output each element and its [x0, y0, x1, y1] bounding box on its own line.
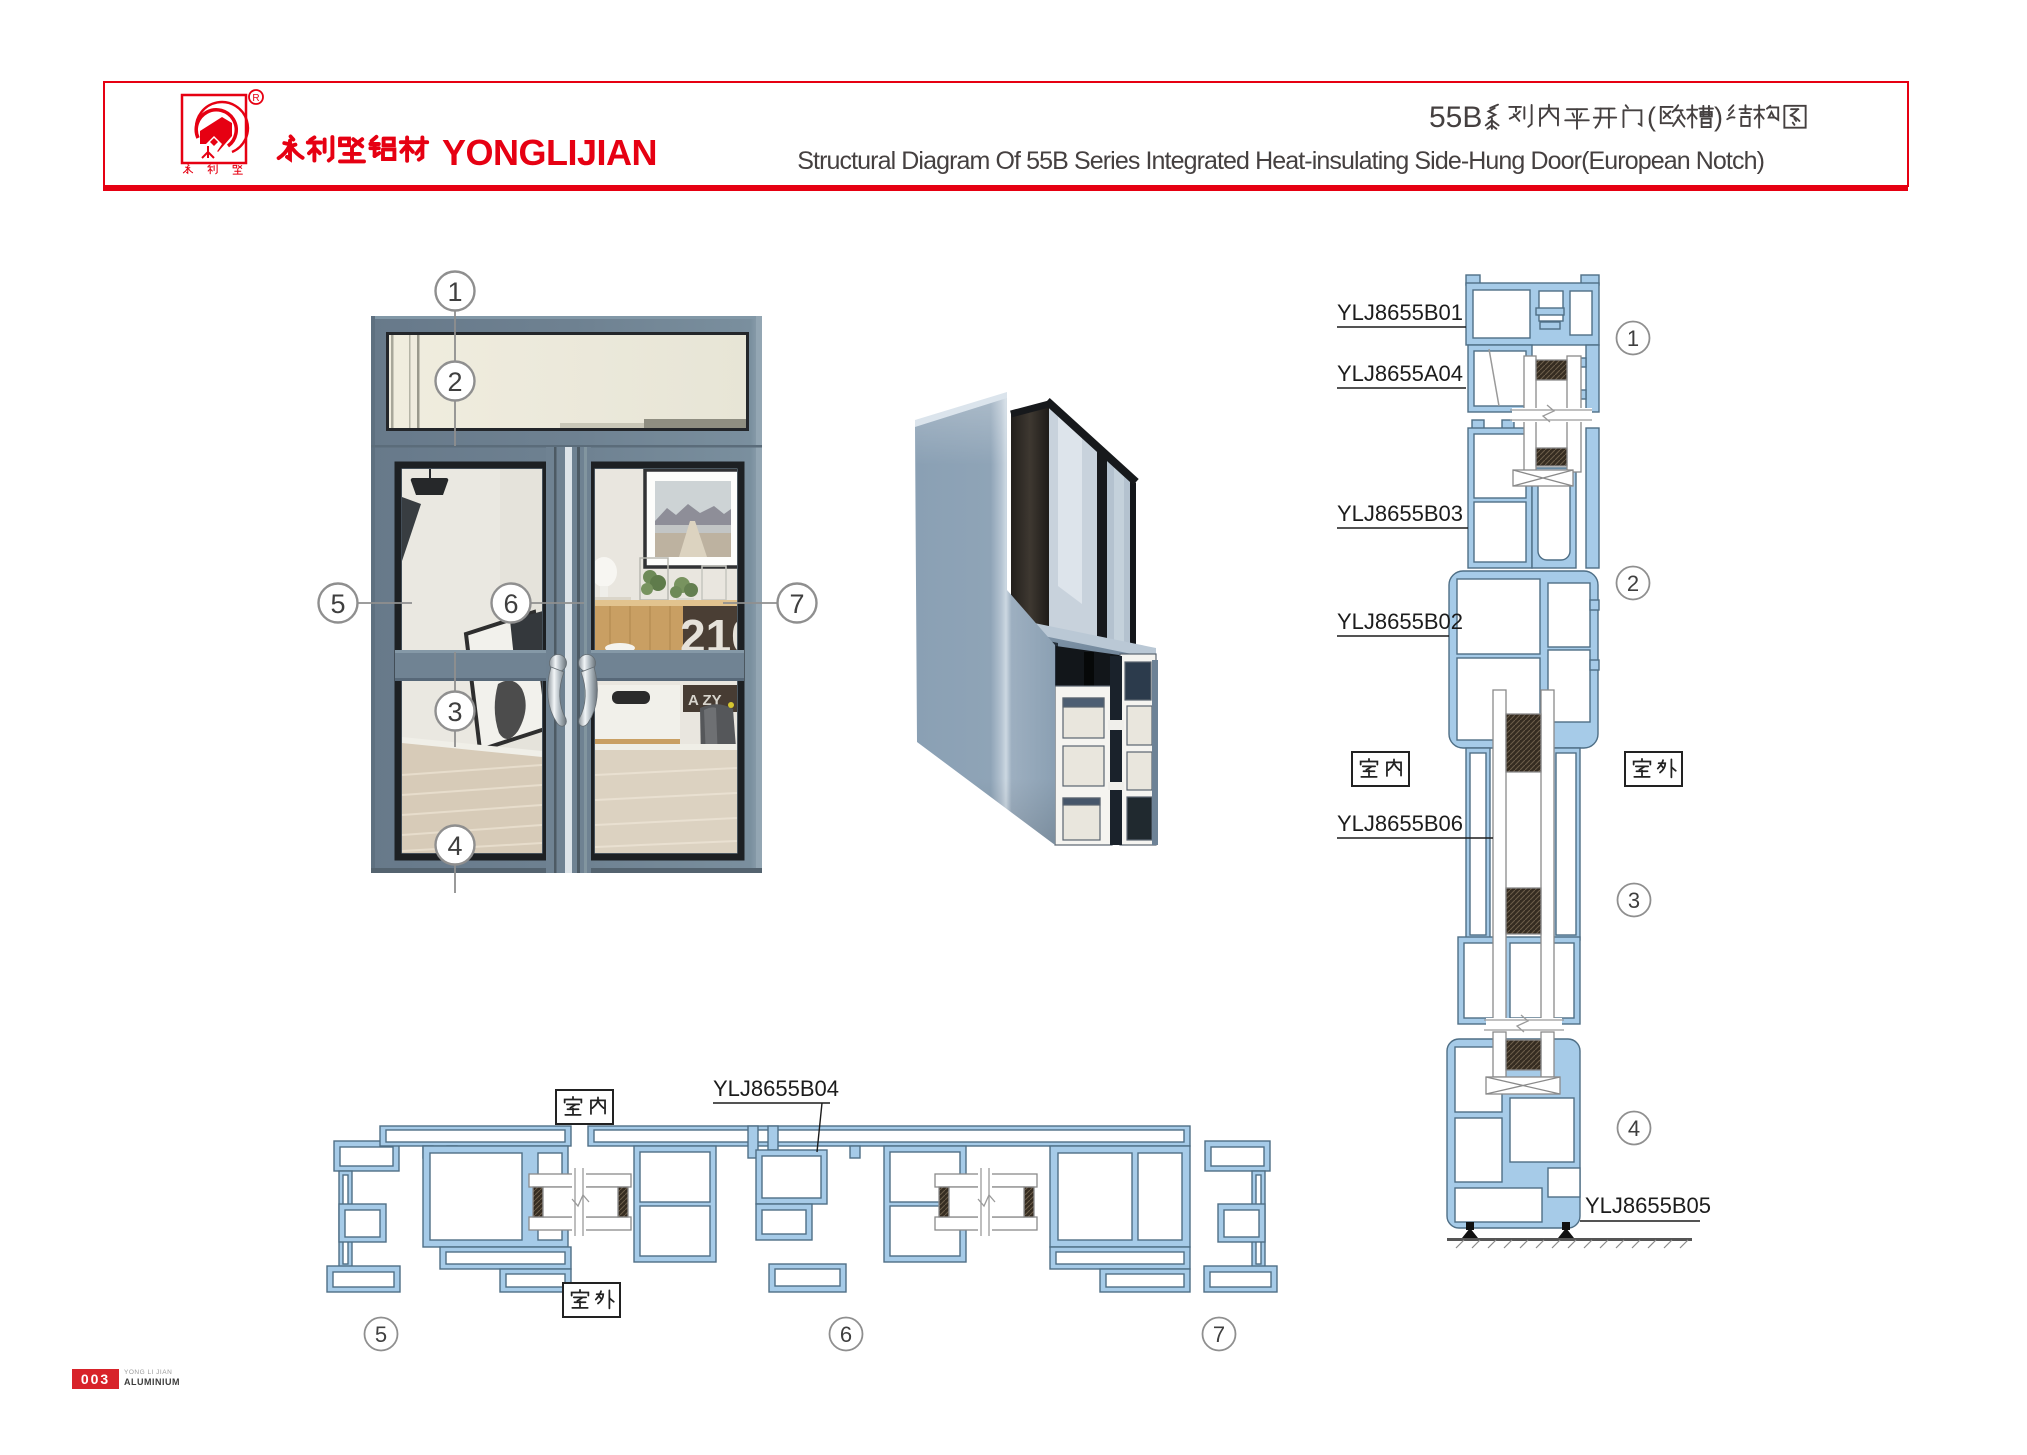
svg-text:5: 5: [375, 1322, 387, 1347]
svg-text:YLJ8655B04: YLJ8655B04: [713, 1076, 839, 1101]
svg-text:7: 7: [1213, 1322, 1225, 1347]
svg-text:6: 6: [840, 1322, 852, 1347]
